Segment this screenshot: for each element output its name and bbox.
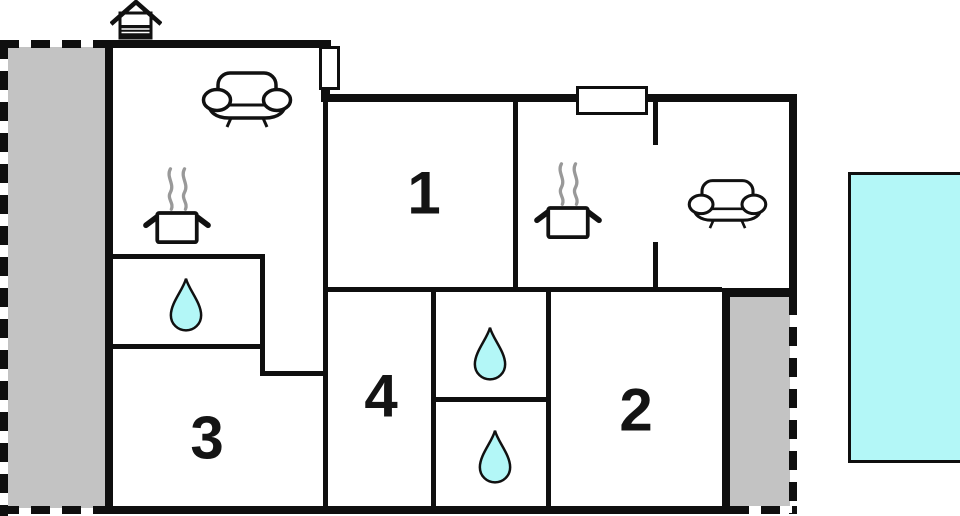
sofa-icon bbox=[687, 178, 768, 229]
swimming-pool bbox=[848, 172, 960, 463]
terrace-right-dashed-border-south bbox=[730, 506, 797, 514]
wall-bathroom-left-east bbox=[260, 254, 265, 376]
window-north bbox=[576, 86, 648, 115]
wall-corridor-south bbox=[260, 371, 328, 376]
wall-baths-divider bbox=[434, 397, 548, 402]
water-drop-icon bbox=[168, 276, 204, 333]
wall-outer-west bbox=[105, 40, 113, 514]
wall-outer-room2-east bbox=[722, 288, 730, 514]
water-drop-icon bbox=[472, 325, 508, 382]
terrace-left-dashed-border-west bbox=[0, 40, 8, 516]
wall-kitchen-lounge-lower bbox=[653, 242, 658, 292]
wall-outer-east bbox=[789, 94, 797, 296]
chimney-icon bbox=[110, 0, 162, 42]
room-3-label: 3 bbox=[190, 404, 223, 473]
terrace-left-dashed-border-north bbox=[0, 40, 107, 48]
wall-kitchen-lounge-upper bbox=[653, 99, 658, 145]
wall-outer-south bbox=[105, 506, 730, 514]
room-2-label: 2 bbox=[619, 376, 652, 445]
terrace-left bbox=[8, 47, 107, 508]
wall-bathroom-left-north bbox=[110, 254, 262, 259]
wall-outer-top-main bbox=[322, 94, 797, 102]
wall-interior-mid-horizontal bbox=[323, 287, 722, 292]
terrace-right bbox=[730, 296, 790, 506]
cooking-pot-icon bbox=[141, 166, 213, 245]
water-drop-icon bbox=[477, 428, 513, 485]
sofa-icon bbox=[201, 70, 293, 128]
cooking-pot-icon bbox=[532, 161, 604, 240]
entry-door bbox=[319, 46, 340, 90]
terrace-left-dashed-border-south bbox=[0, 506, 107, 514]
wall-interior-long-vertical bbox=[323, 97, 328, 506]
wall-outer-step-south bbox=[722, 288, 797, 297]
terrace-right-dashed-border-east bbox=[789, 296, 797, 514]
wall-room1-kitchen bbox=[513, 99, 518, 291]
floor-plan-canvas: 1 2 3 4 bbox=[0, 0, 960, 516]
wall-bathroom-left-south bbox=[110, 344, 262, 349]
room-1-label: 1 bbox=[407, 159, 440, 228]
room-4-label: 4 bbox=[364, 362, 397, 431]
